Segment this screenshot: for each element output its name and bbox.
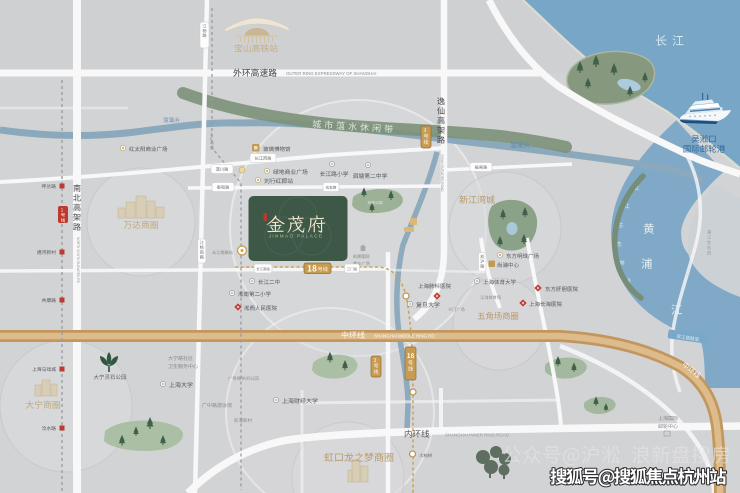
svg-text:YIXIAN ELEVATED ROAD: YIXIAN ELEVATED ROAD [440,154,444,192]
svg-text:SHANGHAI INNER RING ROAD: SHANGHAI INNER RING ROAD [445,433,509,438]
svg-text:NORTH SOUTH ELEVATED RD: NORTH SOUTH ELEVATED RD [76,237,80,284]
svg-text:OUTER RING EXPRESSWAY OF SHANG: OUTER RING EXPRESSWAY OF SHANGHAI [286,71,376,76]
svg-text:JINMAO PALACE: JINMAO PALACE [269,234,324,239]
svg-text:SHANGHAI MIDDLE RING RD: SHANGHAI MIDDLE RING RD [374,334,435,339]
